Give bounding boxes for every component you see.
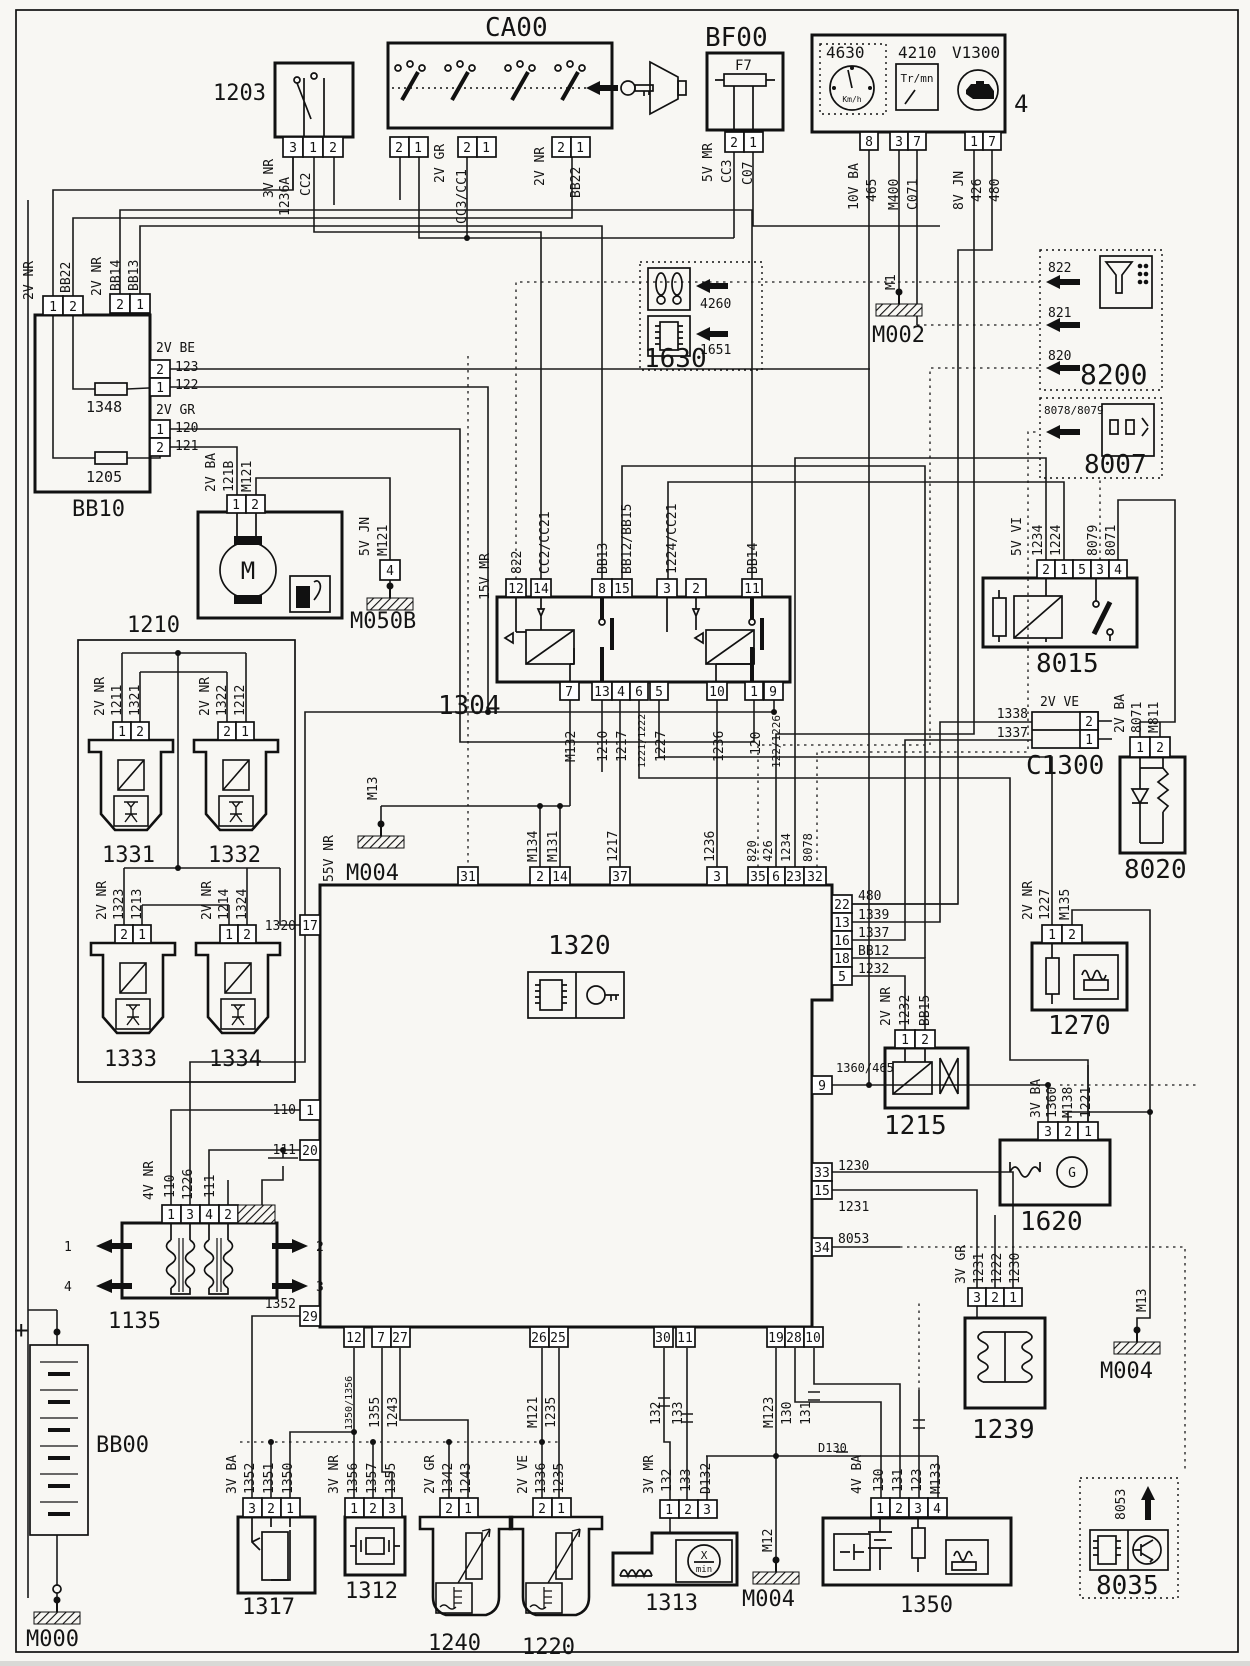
injector-group: 1 2 2V NR 1211 1321 1331 2 1 2V NR 1322 … <box>78 640 295 1082</box>
arrow-icon <box>1046 275 1080 289</box>
ground-ref: M002 <box>872 323 925 348</box>
battery-plates-icon <box>40 1362 78 1514</box>
svg-text:2: 2 <box>730 136 738 151</box>
svg-text:11: 11 <box>744 582 760 597</box>
pin-box: 12 <box>506 579 526 597</box>
wire-label: M133 <box>929 1463 944 1494</box>
wire-label: 1211 <box>110 685 125 716</box>
temp-sensor-icon <box>420 1517 512 1615</box>
pin-box: 2 <box>1062 925 1082 943</box>
pin-box: 2 <box>150 438 170 456</box>
svg-text:1: 1 <box>118 725 126 740</box>
svg-text:14: 14 <box>552 870 568 885</box>
svg-text:2: 2 <box>329 141 337 156</box>
harness-label: 5V JN <box>358 517 373 556</box>
wire-label: BB15 <box>918 995 933 1026</box>
terminal-label: 4 <box>64 1280 72 1295</box>
pin-box: 2 <box>725 132 744 152</box>
wire-label: 1350/1356 <box>344 1376 355 1430</box>
wire-label: 1235 <box>552 1463 567 1494</box>
wire-label: 1336 <box>534 1463 549 1494</box>
pin-box: 23 <box>785 867 804 885</box>
component-ref: 1215 <box>884 1111 947 1141</box>
pin-box: 6 <box>768 867 785 885</box>
svg-text:3: 3 <box>388 1502 396 1517</box>
component-ref: 1270 <box>1048 1011 1111 1041</box>
pin-box: 2 <box>63 296 83 315</box>
harness-label: 5V VI <box>1010 517 1025 556</box>
wire-label: 1356 <box>346 1463 361 1494</box>
component-1350: 1350 1 2 3 4 4V BA 130 131 123 M133 D130 <box>818 1441 1011 1618</box>
svg-text:1: 1 <box>1060 563 1068 578</box>
injector-icon <box>91 943 175 1033</box>
pin-box: 3 <box>1038 1122 1058 1140</box>
svg-text:5: 5 <box>655 685 663 700</box>
svg-text:1: 1 <box>901 1033 909 1048</box>
component-ref: 4210 <box>898 43 937 62</box>
wire-label: C07 <box>741 162 756 185</box>
wire-label: 1210 <box>596 731 611 762</box>
svg-text:12: 12 <box>346 1331 362 1346</box>
pin-box: 7 <box>908 132 926 150</box>
wire-label: 1339 <box>858 908 889 923</box>
component-1332: 2 1 2V NR 1322 1212 1332 <box>194 677 278 868</box>
pin-box: 10 <box>804 1327 823 1347</box>
pin-box: 3 <box>657 579 677 597</box>
component-ref: 1220 <box>522 1635 575 1660</box>
pin-box: 1 <box>150 420 170 438</box>
svg-text:30: 30 <box>655 1331 671 1346</box>
wire-label: BB22 <box>59 262 74 293</box>
harness-label: 2V NR <box>95 881 110 920</box>
svg-text:1: 1 <box>1084 1125 1092 1140</box>
svg-text:1: 1 <box>557 1502 565 1517</box>
svg-text:8: 8 <box>598 582 606 597</box>
pin-box: 16 <box>832 931 852 949</box>
wire-label: 123 <box>910 1469 925 1492</box>
pin-box: 3 <box>698 1500 717 1518</box>
pin-box: 7 <box>560 682 579 700</box>
component-1320-ecu: 1320 1320 17 110 1 111 20 1352 29 31 2 1… <box>265 831 894 1430</box>
harness-label: 2V BE <box>156 341 195 356</box>
pin-box: 1 <box>1042 925 1062 943</box>
pin-box: 1 <box>300 1100 320 1120</box>
svg-text:26: 26 <box>531 1331 547 1346</box>
pin-box: 2 <box>533 1498 552 1517</box>
rpm-label: min <box>696 1565 712 1575</box>
relay-internals <box>505 597 762 682</box>
svg-text:1: 1 <box>414 141 422 156</box>
pin-box: 1 <box>113 722 131 740</box>
harness-label: 2V GR <box>423 1455 438 1494</box>
wire-label: 1337 <box>858 926 889 941</box>
arrow-icon <box>96 1279 132 1293</box>
ground-icon <box>34 1597 80 1625</box>
shield-hatch <box>238 1205 275 1223</box>
pin-box: 2 <box>458 137 477 157</box>
svg-text:2: 2 <box>251 498 259 513</box>
schematic-page: 1203 3 1 2 3V NR 1236A CC2 CA00 2 1 2 1 … <box>0 0 1250 1661</box>
connector-label: 1320 <box>265 919 296 934</box>
svg-text:2: 2 <box>895 1502 903 1517</box>
pin-box: 2 <box>390 137 409 157</box>
pin-box: 33 <box>812 1163 832 1181</box>
pin-box: 15 <box>812 1181 832 1199</box>
svg-text:29: 29 <box>302 1310 318 1325</box>
heater-resistor-icon <box>1046 943 1118 1004</box>
terminal-label: 2 <box>316 1240 324 1255</box>
pin-box: 18 <box>832 949 852 967</box>
pin-box: 25 <box>549 1327 568 1347</box>
pin-box: 4 <box>1109 560 1127 578</box>
svg-text:1: 1 <box>1136 741 1144 756</box>
svg-text:13: 13 <box>594 685 610 700</box>
pin-box: 1 <box>409 137 428 157</box>
pin-box: 2 <box>150 360 170 378</box>
svg-text:1: 1 <box>225 928 233 943</box>
pin-box: 14 <box>531 579 551 597</box>
ground-M050B: 4 5V JN M121 M050B <box>350 517 416 634</box>
svg-text:1: 1 <box>350 1502 358 1517</box>
svg-text:2: 2 <box>692 582 700 597</box>
svg-text:4: 4 <box>1114 563 1122 578</box>
svg-text:9: 9 <box>769 685 777 700</box>
wire-label: 1236 <box>703 831 718 862</box>
arrow-icon <box>696 327 728 341</box>
svg-text:1: 1 <box>156 423 164 438</box>
generator-label: G <box>1068 1166 1076 1181</box>
wire-label: 1227 <box>654 731 669 762</box>
wire-label: M400 <box>887 179 902 210</box>
wire-label: 8053 <box>838 1232 869 1247</box>
wire-label: BB22 <box>569 167 584 198</box>
svg-text:25: 25 <box>550 1331 566 1346</box>
svg-text:2: 2 <box>536 870 544 885</box>
tachometer-icon: Tr/mn <box>896 64 938 110</box>
fuel-pump-icon <box>290 576 330 612</box>
wire-label: 1236 <box>712 731 727 762</box>
component-ref: BF00 <box>705 23 768 53</box>
pin-box: 1 <box>345 1498 364 1517</box>
wire-label: 465 <box>865 179 880 202</box>
component-1630: 4260 1651 1630 <box>640 262 762 374</box>
injector-icon <box>89 740 173 830</box>
svg-text:5: 5 <box>1078 563 1086 578</box>
svg-text:2: 2 <box>445 1502 453 1517</box>
pin-box: 26 <box>530 1327 549 1347</box>
wire-label: 1360 <box>1045 1087 1060 1118</box>
svg-text:2: 2 <box>1068 928 1076 943</box>
module-icon <box>1093 1536 1161 1564</box>
wire-label: M138 <box>1061 1087 1076 1118</box>
pin-box: 20 <box>300 1140 320 1160</box>
motor-icon: M <box>220 513 276 604</box>
wire-label: 1231 <box>972 1253 987 1284</box>
svg-text:19: 19 <box>768 1331 784 1346</box>
wire-label: BB14 <box>109 260 124 291</box>
svg-text:2: 2 <box>223 725 231 740</box>
wire-label: 1351 <box>262 1463 277 1494</box>
wire-label: 1232 <box>898 995 913 1026</box>
pin-box: 17 <box>300 915 320 935</box>
pin-box: 1 <box>1055 560 1073 578</box>
svg-text:2: 2 <box>1064 1125 1072 1140</box>
pin-box: 2 <box>323 137 343 157</box>
pin-box: 35 <box>748 867 768 885</box>
pin-box: 4 <box>612 682 630 700</box>
wire-label: 122/1226 <box>770 715 783 768</box>
component-ref: V1300 <box>952 43 1000 62</box>
svg-text:1: 1 <box>306 1104 314 1119</box>
svg-text:4: 4 <box>205 1208 213 1223</box>
pin-box: 29 <box>300 1306 320 1326</box>
fuse-ref: 1205 <box>86 468 122 486</box>
svg-text:1: 1 <box>1048 928 1056 943</box>
wire-label: 1236A <box>278 177 293 216</box>
pin-box: 1 <box>43 296 63 315</box>
pin-box: 2 <box>679 1500 698 1518</box>
harness-label: 2V VE <box>516 1455 531 1494</box>
wire-label: BB13 <box>596 543 611 574</box>
svg-text:2: 2 <box>267 1502 275 1517</box>
svg-text:37: 37 <box>612 870 628 885</box>
wire-label: 8V JN <box>952 171 967 210</box>
svg-text:2: 2 <box>463 141 471 156</box>
svg-text:2: 2 <box>69 300 77 315</box>
svg-text:28: 28 <box>786 1331 802 1346</box>
component-ref: 1210 <box>127 613 180 638</box>
pin-box: 1 <box>220 925 238 943</box>
wire-label: 133 <box>679 1469 694 1492</box>
harness-label: 2V NR <box>879 987 894 1026</box>
pin-box: 28 <box>785 1327 804 1347</box>
wire-label: BB12 <box>858 944 889 959</box>
svg-text:33: 33 <box>814 1166 830 1181</box>
component-ref: 1620 <box>1020 1207 1083 1237</box>
wire-label: M132 <box>564 731 579 762</box>
wire-label: 1243 <box>386 1397 401 1428</box>
pin-box: 2 <box>1037 560 1055 578</box>
pin-box: 3 <box>968 1288 986 1306</box>
svg-text:17: 17 <box>302 919 318 934</box>
component-ref: 1313 <box>645 1591 698 1616</box>
harness-label: 2V NR <box>198 677 213 716</box>
pin-box: 2 <box>1150 737 1170 757</box>
arrow-icon <box>696 279 728 293</box>
wire-label: D132 <box>699 1463 714 1494</box>
wire-label: M1 <box>884 274 899 290</box>
wire-label: 130 <box>872 1469 887 1492</box>
wire-label: 1224/CC21 <box>665 504 680 574</box>
svg-text:27: 27 <box>392 1331 408 1346</box>
wire-label: M13 <box>1135 1289 1150 1312</box>
svg-text:1: 1 <box>167 1208 175 1223</box>
pin-box: 6 <box>630 682 648 700</box>
component-1334: 1 2 2V NR 1214 1324 1334 <box>196 881 280 1072</box>
pin-box: 3 <box>383 1498 402 1517</box>
svg-text:10: 10 <box>805 1331 821 1346</box>
rpm-label: X <box>701 1549 708 1562</box>
injector-icon <box>194 740 278 830</box>
svg-text:2: 2 <box>538 1502 546 1517</box>
fuse-icon <box>95 452 127 464</box>
pin-box: 5 <box>832 967 852 985</box>
component-ref: 1240 <box>428 1631 481 1656</box>
svg-text:5: 5 <box>838 970 846 985</box>
ignition-key-icon <box>586 81 653 96</box>
svg-text:1: 1 <box>232 498 240 513</box>
svg-text:1: 1 <box>49 300 57 315</box>
wire-label: 8053 <box>1114 1489 1129 1520</box>
pin-box: 8 <box>592 579 612 597</box>
svg-text:Km/h: Km/h <box>842 95 861 104</box>
wire-label: 122 <box>175 378 198 393</box>
svg-text:Tr/mn: Tr/mn <box>900 72 933 85</box>
harness-label: 2V NR <box>93 677 108 716</box>
wire-label: 8078 <box>801 833 815 862</box>
pedals-icon <box>656 273 682 304</box>
component-1215: 1215 1 2 2V NR 1232 BB15 <box>879 987 968 1141</box>
pin-box: 32 <box>804 867 826 885</box>
wire-label: C071 <box>906 179 921 210</box>
pin-box: 4 <box>928 1498 947 1517</box>
component-BF00: BF00 F7 2 1 5V MR CC3 C07 <box>650 23 783 185</box>
pin-box: 2 <box>890 1498 909 1517</box>
wire-label: 1321 <box>128 685 143 716</box>
component-CA00: CA00 2 1 2 1 2 1 2V GR CC3/CC1 2V NR BB2… <box>388 13 653 224</box>
svg-text:2: 2 <box>395 141 403 156</box>
wire-label: 822 <box>1048 261 1071 276</box>
pin-box: 2 <box>238 925 256 943</box>
wire-label: 1355 <box>384 1463 399 1494</box>
component-BB10: BB10 1 2 2 1 2V NR BB22 2V NR BB14 BB13 … <box>22 257 198 522</box>
component-1239: 1239 3 2 1 3V GR 1231 1222 1230 <box>954 1245 1045 1445</box>
svg-text:7: 7 <box>913 135 921 150</box>
pin-box: 1 <box>1004 1288 1022 1306</box>
wire-label: 110 <box>273 1103 296 1118</box>
pin-box: 2 <box>915 1030 935 1048</box>
pin-box: 13 <box>832 913 852 931</box>
wire-label: 1231 <box>838 1200 869 1215</box>
svg-text:2: 2 <box>684 1503 692 1518</box>
wire-label: 426 <box>970 179 985 202</box>
arrow-icon <box>96 1239 132 1253</box>
pin-box: 10 <box>707 682 727 700</box>
battery-plus: + <box>14 1316 28 1344</box>
wire-label: 1227 <box>1038 889 1053 920</box>
svg-text:22: 22 <box>834 898 850 913</box>
wire-label: 121 <box>175 439 198 454</box>
ecu-icon <box>528 972 624 1018</box>
terminal-label: 1 <box>64 1240 72 1255</box>
instrument-cluster: 4630 Km/h 4210 Tr/mn V1300 4 8 3 7 1 7 1… <box>812 35 1028 210</box>
harness-label: 3V BA <box>225 1455 240 1494</box>
svg-text:23: 23 <box>786 870 802 885</box>
svg-text:2: 2 <box>1042 563 1050 578</box>
pin-box: 5 <box>650 682 668 700</box>
pin-box: 3 <box>890 132 908 150</box>
pin-box: 3 <box>181 1205 200 1223</box>
svg-text:20: 20 <box>302 1144 318 1159</box>
pin-box: 1 <box>236 722 254 740</box>
svg-text:4: 4 <box>386 564 394 579</box>
component-1331: 1 2 2V NR 1211 1321 1331 <box>89 677 173 868</box>
pin-box: 1 <box>1080 730 1098 748</box>
svg-text:11: 11 <box>677 1331 693 1346</box>
svg-text:3: 3 <box>289 141 297 156</box>
engine-warning-icon <box>958 70 998 110</box>
pin-box: 1 <box>459 1498 478 1517</box>
wire-label: 1230 <box>1008 1253 1023 1284</box>
svg-text:2: 2 <box>136 725 144 740</box>
pin-box: 3 <box>909 1498 928 1517</box>
ground-icon <box>367 583 413 611</box>
pin-box: 1 <box>1078 1122 1098 1140</box>
component-ref: 1331 <box>102 843 155 868</box>
svg-text:1: 1 <box>482 141 490 156</box>
speedometer-icon: Km/h <box>830 66 874 110</box>
component-ref: 1332 <box>208 843 261 868</box>
pin-box: 7 <box>983 132 1001 150</box>
svg-text:1: 1 <box>309 141 317 156</box>
component-1240: 1240 2 1 2V GR 1342 1243 <box>420 1455 512 1656</box>
terminal-label: 3 <box>316 1280 324 1295</box>
wire-label: 1230 <box>838 1159 869 1174</box>
wire-label: M121 <box>240 461 255 492</box>
component-ref: 8020 <box>1124 855 1187 885</box>
svg-text:7: 7 <box>565 685 573 700</box>
component-ref: 1135 <box>108 1309 161 1334</box>
wire-label: 1338 <box>997 707 1028 722</box>
component-ref: 1304 <box>438 691 501 721</box>
pin-box: 2 <box>115 925 133 943</box>
wire-label: 1235 <box>544 1397 559 1428</box>
component-8007: 8078/8079 8007 <box>1040 398 1162 480</box>
svg-text:2: 2 <box>156 363 164 378</box>
component-8035: 8053 8035 <box>1080 1478 1178 1601</box>
wire-label: 131 <box>891 1469 906 1492</box>
svg-text:1: 1 <box>665 1503 673 1518</box>
stepper-coils-icon <box>978 1332 1032 1382</box>
wire-label: 1350 <box>281 1463 296 1494</box>
harness-label: 3V NR <box>327 1455 342 1494</box>
pin-box: 1 <box>303 137 323 157</box>
harness-label: 2V VE <box>1040 695 1079 710</box>
svg-text:2: 2 <box>557 141 565 156</box>
harness-label: 2V NR <box>1021 881 1036 920</box>
svg-text:1: 1 <box>750 685 758 700</box>
wire-label: CC3 <box>720 160 735 183</box>
arrow-up-icon <box>1141 1486 1155 1520</box>
component-1312: 1312 1 2 3 3V NR 1356 1357 1355 <box>327 1455 405 1604</box>
wire-label: 426 <box>761 840 775 862</box>
wire-label: 1221/1222 <box>637 714 648 768</box>
pin-box: 1 <box>745 682 763 700</box>
component-ref: C1300 <box>1026 751 1104 781</box>
component-1317: 1317 3 2 1 3V BA 1352 1351 1350 <box>225 1455 315 1620</box>
pin-box: 2 <box>262 1498 281 1517</box>
svg-text:18: 18 <box>834 952 850 967</box>
pin-box: 2 <box>530 867 550 885</box>
svg-text:2: 2 <box>369 1502 377 1517</box>
svg-text:3: 3 <box>663 582 671 597</box>
wire-label: 130 <box>780 1402 795 1425</box>
wire-label: 3V NR <box>262 159 277 198</box>
pin-box: 1 <box>150 378 170 396</box>
pin-box: 9 <box>812 1076 832 1094</box>
wire-label: 1243 <box>459 1463 474 1494</box>
svg-text:2: 2 <box>1156 741 1164 756</box>
